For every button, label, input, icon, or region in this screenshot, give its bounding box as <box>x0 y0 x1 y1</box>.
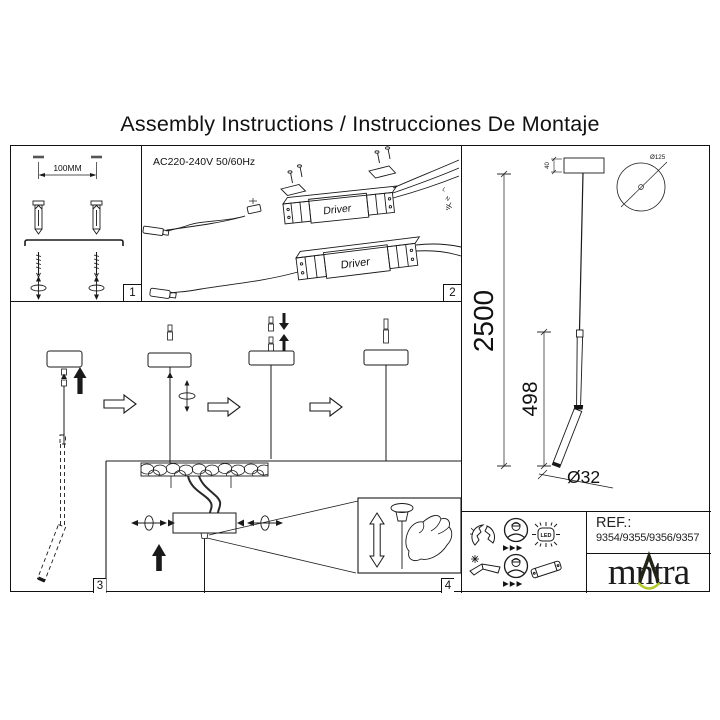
driver-label: Driver <box>341 256 371 272</box>
screw-icon <box>288 171 293 183</box>
canopy-height-dim: 40 <box>545 162 551 169</box>
hole-distance-dim: 100MM <box>53 163 81 173</box>
screw-icon <box>375 151 380 163</box>
lamp-dimension-drawing: 2500 498 40 Ø32 Ø125 <box>461 146 711 511</box>
panel1-mounting-drawing: 100MM <box>11 146 141 301</box>
panel2-number: 2 <box>443 284 461 301</box>
body-length-dim: 498 <box>519 381 542 416</box>
canopy <box>564 158 604 173</box>
pendant-lamp-dashed <box>38 435 66 581</box>
total-drop-dim: 2500 <box>468 290 499 352</box>
canopy <box>47 351 82 367</box>
brand-caret-icon <box>637 553 661 595</box>
panel2-driver-drawing: AC220-240V 50/60Hz Driver <box>141 146 461 301</box>
damaged-strip-icon <box>467 554 505 580</box>
ceiling-hatch <box>140 463 271 479</box>
panel1-number: 1 <box>123 284 141 301</box>
canopy <box>249 351 294 365</box>
canopy-diameter-dim: Ø125 <box>650 154 666 161</box>
rotate-screw-icon <box>89 276 104 300</box>
instruction-sheet: Assembly Instructions / Instrucciones De… <box>0 0 720 720</box>
wire-label-live: L <box>441 187 447 194</box>
mains-wire <box>393 160 459 188</box>
wall-anchor-icon <box>91 201 102 234</box>
driver-box: Driver <box>295 237 423 282</box>
canopy <box>364 350 408 365</box>
lamp-tip-cap <box>38 578 45 581</box>
screw-icon <box>298 165 303 177</box>
technician-icon <box>503 517 529 543</box>
panel3-number: 3 <box>93 578 106 593</box>
mains-wire <box>416 251 461 256</box>
screw-icon <box>36 252 41 277</box>
mains-wire <box>393 168 459 193</box>
bracket-plate <box>369 166 396 178</box>
cable-plug <box>247 204 261 214</box>
push-arrow <box>168 520 175 527</box>
height-adjust-detail <box>358 498 461 573</box>
led-module-icon <box>527 555 565 583</box>
mains-wire <box>416 244 461 247</box>
mains-wire <box>393 176 459 198</box>
refer-arrows: ▶▶▶ <box>503 543 523 552</box>
supply-cable <box>171 272 298 293</box>
refer-arrows: ▶▶▶ <box>503 579 523 588</box>
canopy-top-view <box>617 162 667 211</box>
earth-ground-icon <box>444 201 454 211</box>
next-step-arrow <box>208 398 240 416</box>
ref-numbers: 9354/9355/9356/9357 <box>596 532 711 544</box>
cable-connector <box>150 288 177 300</box>
lamp-tube <box>552 409 581 468</box>
ref-label: REF.: <box>596 515 711 531</box>
body-diameter-dim: Ø32 <box>567 467 600 487</box>
bracket-plate <box>281 185 306 196</box>
next-step-arrow <box>104 395 136 413</box>
rotate-screw-icon <box>131 516 167 530</box>
reference-box: REF.: 9354/9355/9356/9357 <box>586 511 711 553</box>
rotate-screw-icon <box>31 276 46 300</box>
panel3-assembly-drawing <box>11 301 461 593</box>
canopy <box>148 353 191 367</box>
next-step-arrow <box>310 398 342 416</box>
screw-icon <box>386 147 391 159</box>
brand-text-left: m <box>608 558 636 588</box>
power-rating: AC220-240V 50/60Hz <box>153 156 255 168</box>
drawing-frame: 100MM AC220-240V 50/60Hz <box>10 145 710 592</box>
broken-lamp-icon <box>469 522 499 552</box>
mounting-bracket <box>25 240 123 246</box>
canopy <box>173 513 236 533</box>
safety-icons-box: ▶▶▶ LED <box>461 511 586 593</box>
wall-anchor-icon <box>33 201 44 234</box>
rotate-screw-icon <box>179 380 195 412</box>
page-title: Assembly Instructions / Instrucciones De… <box>0 112 720 137</box>
suspension-cable <box>580 173 584 330</box>
connect-arrows <box>279 313 289 351</box>
driver-label: Driver <box>323 202 352 217</box>
technician-icon <box>503 553 529 579</box>
led-label: LED <box>541 533 552 539</box>
panel4-number: 4 <box>441 578 454 593</box>
brand-logo: m ntra <box>586 553 711 593</box>
ceiling-wire <box>188 476 212 513</box>
wire-label-neutral: N <box>444 196 451 203</box>
screw-icon <box>94 252 99 277</box>
push-arrow <box>237 520 244 527</box>
led-source-icon: LED <box>529 520 563 550</box>
rotate-screw-icon <box>247 516 283 530</box>
cable-connector <box>143 226 169 236</box>
up-arrow <box>74 367 87 394</box>
up-arrow <box>152 544 166 571</box>
